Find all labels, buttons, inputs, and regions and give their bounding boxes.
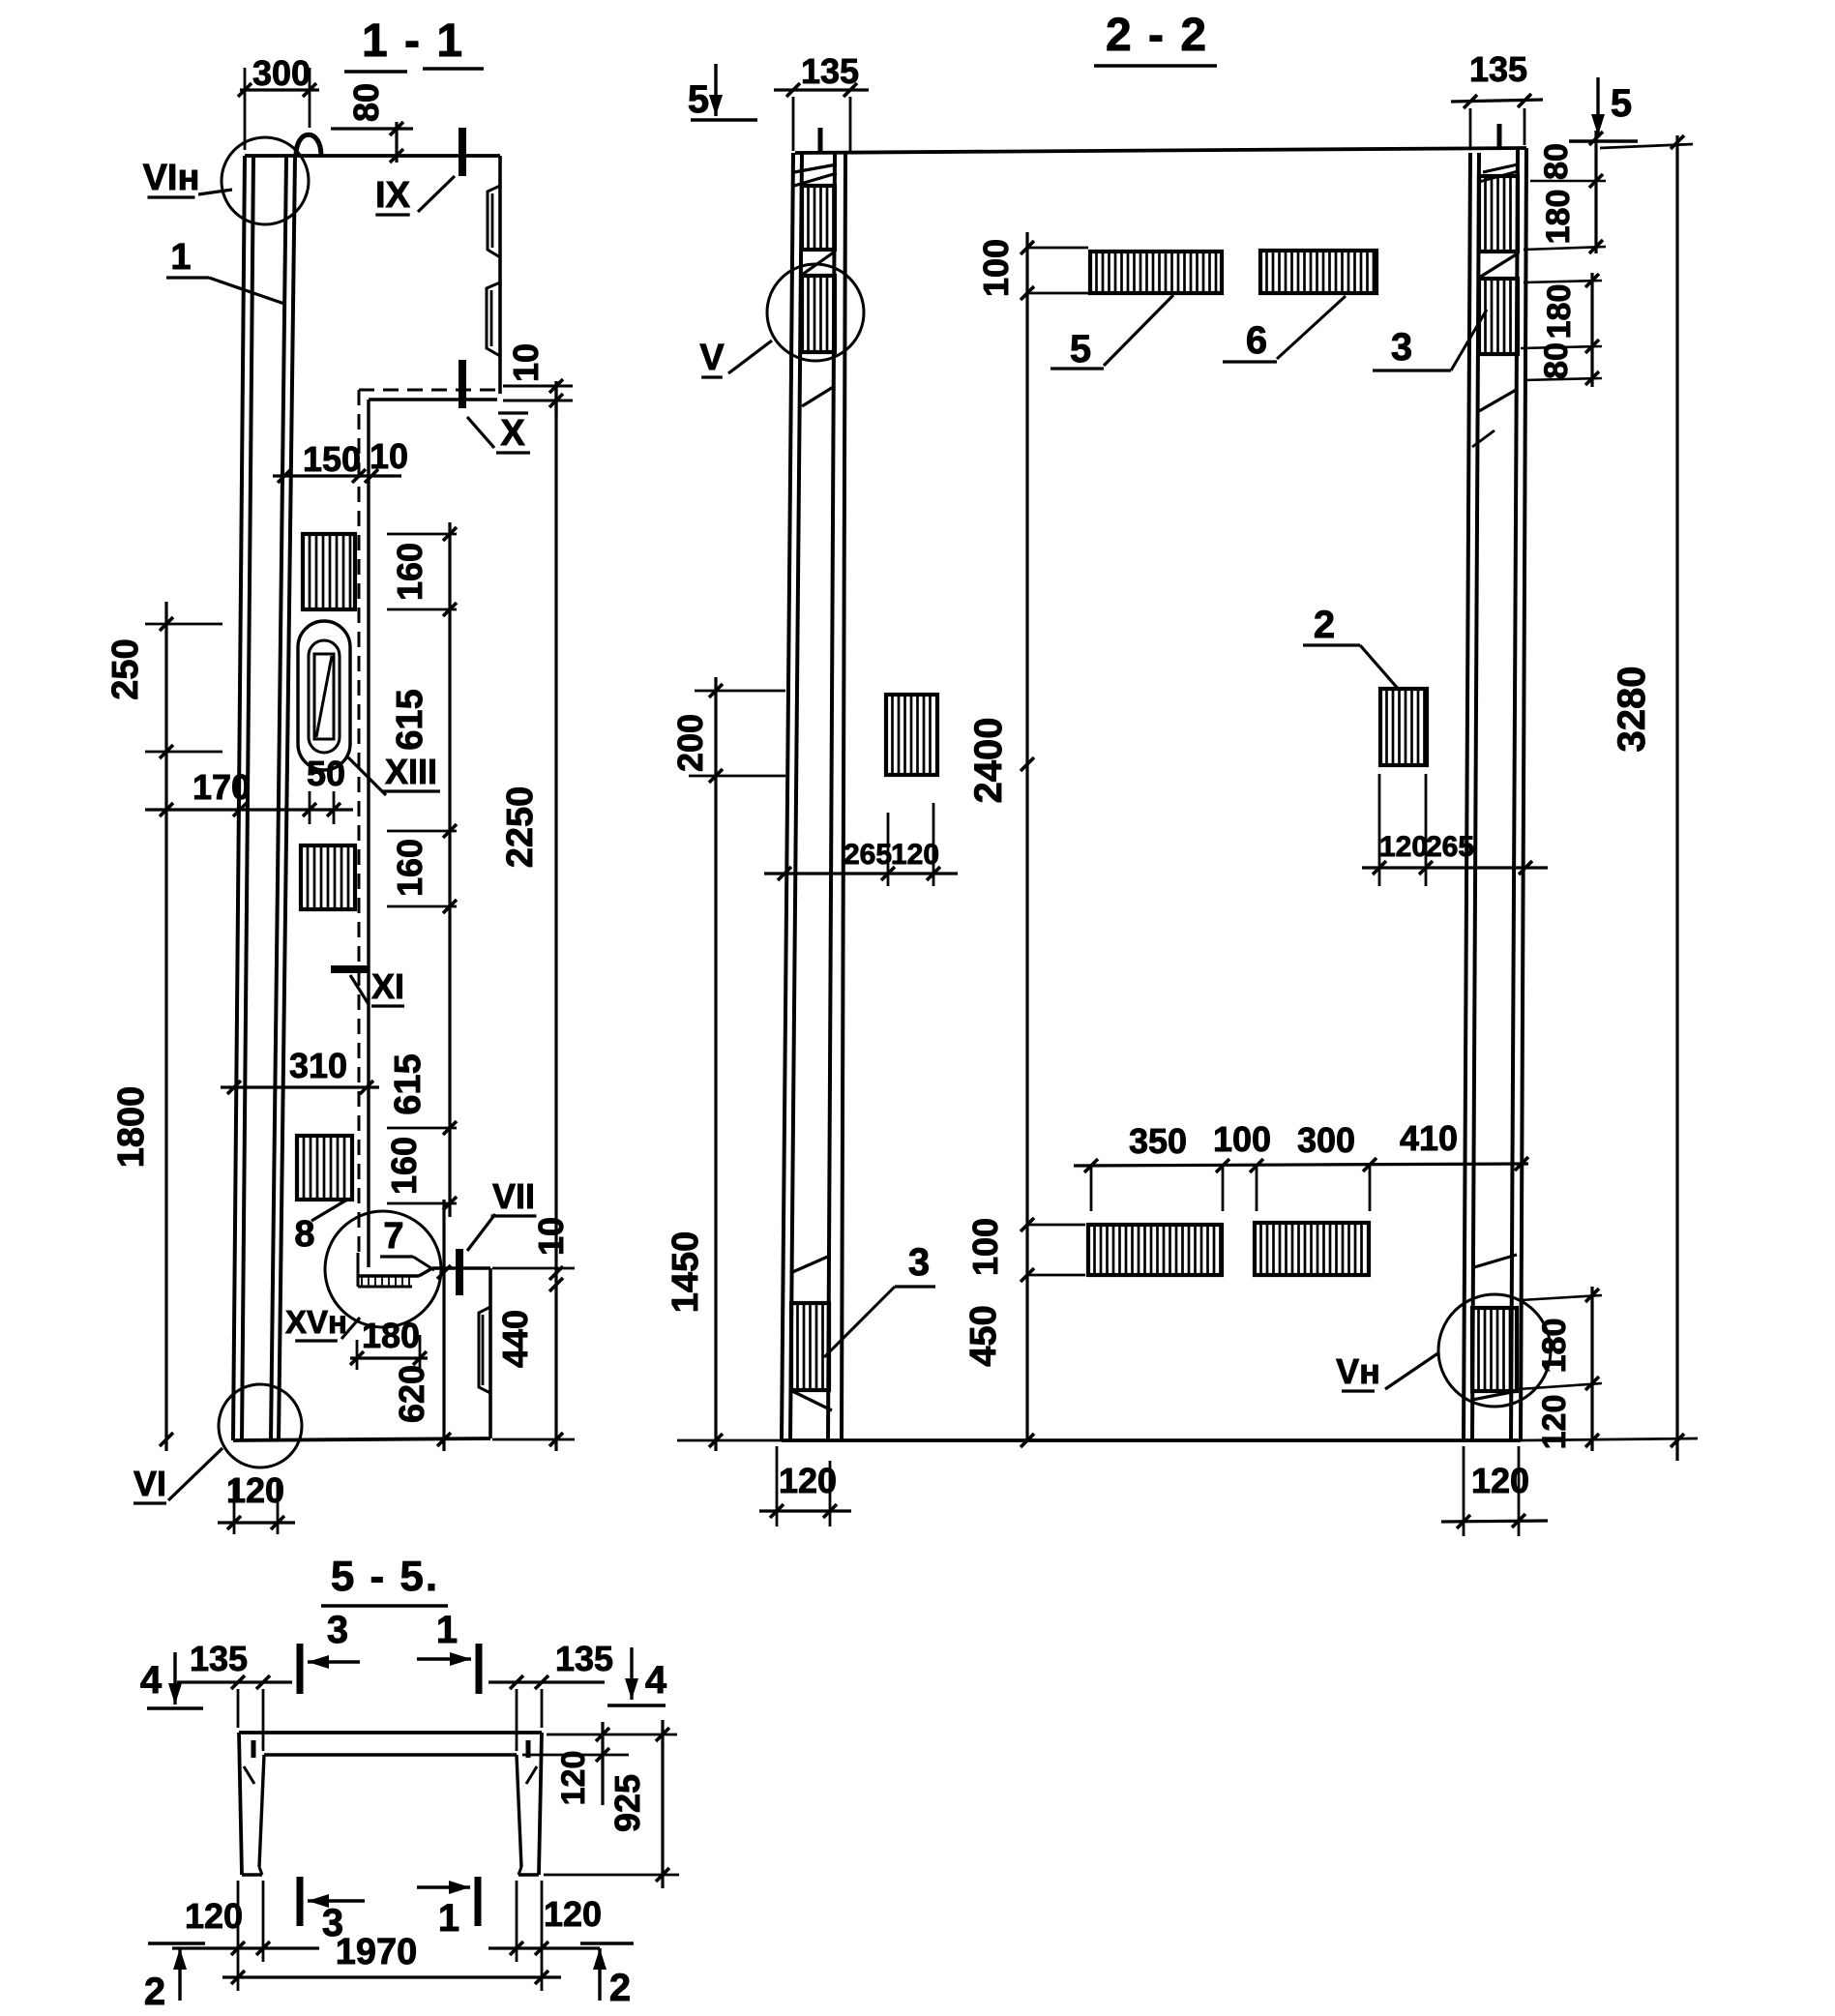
svg-text:180: 180 [362,1316,420,1355]
svg-text:VIн: VIн [143,158,200,198]
svg-text:120: 120 [544,1894,602,1934]
svg-text:120: 120 [1471,1461,1529,1500]
svg-text:2 - 2: 2 - 2 [1106,10,1208,61]
svg-text:7: 7 [383,1216,403,1257]
svg-text:100: 100 [1213,1119,1271,1159]
svg-text:1800: 1800 [111,1086,152,1169]
svg-text:120: 120 [891,839,939,871]
svg-text:135: 135 [1469,49,1527,89]
svg-text:180: 180 [1536,1319,1573,1374]
svg-text:250: 250 [105,638,146,699]
svg-text:440: 440 [495,1310,535,1368]
svg-text:265: 265 [844,839,892,871]
svg-text:3: 3 [327,1609,348,1651]
svg-text:135: 135 [555,1639,613,1678]
svg-text:2: 2 [609,1967,631,2009]
svg-text:150: 150 [303,439,361,479]
svg-text:310: 310 [289,1046,347,1085]
svg-text:135: 135 [190,1639,248,1678]
svg-text:615: 615 [388,1053,429,1114]
svg-text:XVн: XVн [285,1304,347,1340]
svg-text:135: 135 [801,51,859,91]
svg-text:VII: VII [492,1176,535,1216]
svg-text:4: 4 [645,1659,667,1702]
svg-text:1970: 1970 [336,1932,418,1972]
svg-text:6: 6 [1246,319,1267,362]
svg-text:265: 265 [1426,831,1474,863]
svg-text:615: 615 [390,689,430,750]
svg-text:300: 300 [1297,1120,1355,1160]
svg-text:XIII: XIII [385,752,437,791]
svg-text:925: 925 [607,1774,647,1832]
svg-text:620: 620 [392,1365,431,1423]
svg-text:100: 100 [976,239,1016,297]
svg-text:1: 1 [170,237,191,278]
svg-text:410: 410 [1400,1118,1458,1158]
svg-text:100: 100 [965,1218,1005,1276]
svg-text:170: 170 [192,767,251,807]
svg-text:Vн: Vн [1336,1351,1380,1391]
svg-text:2: 2 [144,1971,165,2013]
svg-text:120: 120 [185,1896,243,1936]
svg-text:3: 3 [1391,326,1412,369]
svg-text:180: 180 [1540,190,1577,245]
svg-text:80: 80 [346,83,386,122]
svg-text:160: 160 [384,1137,424,1195]
svg-text:10: 10 [506,343,546,382]
svg-text:160: 160 [390,543,429,601]
svg-text:3: 3 [908,1241,930,1284]
svg-text:5: 5 [688,78,709,121]
svg-text:2250: 2250 [500,786,541,869]
svg-text:120: 120 [1379,831,1428,863]
svg-text:XI: XI [371,966,404,1006]
svg-text:1: 1 [436,1609,458,1651]
svg-text:160: 160 [390,839,429,897]
svg-text:3280: 3280 [1611,667,1653,753]
svg-text:50: 50 [307,754,345,793]
svg-text:X: X [500,413,525,454]
svg-text:1: 1 [438,1897,459,1940]
svg-text:1 - 1: 1 - 1 [362,15,464,67]
svg-text:2: 2 [1314,604,1335,646]
svg-text:10: 10 [370,436,408,476]
svg-text:IX: IX [375,175,411,216]
svg-text:80: 80 [1538,143,1575,180]
svg-text:180: 180 [1541,284,1578,340]
svg-text:V: V [699,338,725,378]
svg-text:1450: 1450 [666,1231,706,1314]
svg-text:4: 4 [140,1659,163,1702]
svg-text:5: 5 [1611,82,1632,125]
svg-text:2400: 2400 [967,718,1010,804]
svg-text:5: 5 [1070,328,1091,371]
svg-text:10: 10 [531,1217,571,1256]
svg-text:120: 120 [555,1751,592,1806]
svg-text:450: 450 [963,1305,1004,1366]
svg-text:200: 200 [670,714,710,772]
svg-text:350: 350 [1129,1121,1187,1161]
svg-text:120: 120 [779,1461,837,1500]
svg-text:VI: VI [133,1464,166,1503]
svg-text:120: 120 [1536,1395,1573,1450]
svg-text:5 - 5.: 5 - 5. [331,1553,439,1600]
svg-text:300: 300 [252,53,311,93]
